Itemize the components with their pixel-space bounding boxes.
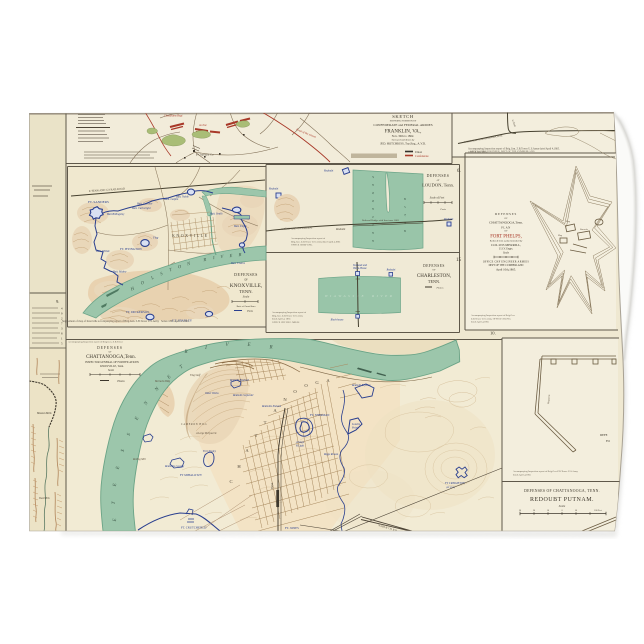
svg-text:Shal.Mills: Shal.Mills bbox=[39, 497, 50, 500]
svg-text:Redoubt: Redoubt bbox=[268, 188, 279, 191]
svg-text:FT. DICKERSON: FT. DICKERSON bbox=[126, 310, 150, 314]
svg-text:Redoubt: Redoubt bbox=[443, 218, 454, 221]
svg-text:S: S bbox=[371, 216, 375, 218]
svg-text:Redoubts Putnam: Redoubts Putnam bbox=[261, 405, 281, 408]
svg-text:DEFENSES: DEFENSES bbox=[495, 212, 517, 216]
svg-text:C: C bbox=[229, 479, 232, 484]
svg-text:RIVER: RIVER bbox=[371, 294, 394, 298]
svg-text:§ Chatham Co: § Chatham Co bbox=[196, 153, 214, 157]
svg-text:Batt. Fearns: Batt. Fearns bbox=[231, 262, 245, 265]
svg-text:Redoubt Carpenter: Redoubt Carpenter bbox=[232, 394, 255, 397]
svg-text:FT. BYINGTON: FT. BYINGTON bbox=[120, 247, 142, 251]
svg-text:DEFENSES: DEFENSES bbox=[97, 346, 123, 350]
svg-text:Accompanying Inspection report: Accompanying Inspection report of Brig.G… bbox=[68, 341, 123, 344]
svg-text:Nov. 30th to 1862.: Nov. 30th to 1862. bbox=[392, 134, 415, 138]
svg-text:Mission Mills: Mission Mills bbox=[37, 412, 52, 415]
svg-text:DEFENSES: DEFENSES bbox=[427, 174, 450, 178]
svg-text:Water Works: Water Works bbox=[205, 392, 219, 395]
svg-text:INSPECTOR GENERAL OF FORTIFICA: INSPECTOR GENERAL OF FORTIFICATIONS bbox=[85, 361, 139, 364]
svg-text:Croix: Croix bbox=[440, 208, 446, 211]
svg-text:15: 15 bbox=[456, 258, 462, 263]
svg-text:Redoubt Bushnell: Redoubt Bushnell bbox=[229, 379, 249, 382]
svg-text:SKETCH: SKETCH bbox=[392, 114, 414, 119]
svg-text:Redoubts Cassidy: Redoubts Cassidy bbox=[164, 465, 185, 468]
svg-text:Redoubt: Redoubt bbox=[335, 228, 346, 231]
svg-text:Batt. Smith: Batt. Smith bbox=[210, 213, 223, 216]
svg-text:Block-House: Block-House bbox=[353, 267, 367, 270]
svg-text:OF: OF bbox=[244, 279, 248, 282]
svg-text:R: R bbox=[183, 350, 187, 355]
svg-text:A Siege: A Siege bbox=[295, 441, 305, 444]
svg-text:Redoubt Boynton: Redoubt Boynton bbox=[351, 384, 371, 387]
svg-text:Batt. Engle: Batt. Engle bbox=[234, 225, 247, 228]
svg-text:Scale of Feet: Scale of Feet bbox=[430, 197, 445, 200]
svg-text:Barracks Bldg: Barracks Bldg bbox=[155, 380, 171, 383]
svg-text:OFFICE CHF ENG. MILES: OFFICE CHF ENG. MILES bbox=[272, 321, 300, 324]
svg-text:Scale: Scale bbox=[559, 504, 566, 508]
svg-text:Supplement of map of Knoxville: Supplement of map of Knoxville accompany… bbox=[62, 320, 189, 323]
svg-text:Confederate: Confederate bbox=[415, 155, 429, 158]
svg-text:OFFICE CHIEF ENGINEER, DEPT OF: OFFICE CHIEF ENGINEER, DEPT OF THE CUMBE… bbox=[470, 150, 535, 153]
svg-text:DEFE: DEFE bbox=[600, 433, 608, 437]
svg-text:Batt. Mabry: Batt. Mabry bbox=[113, 271, 127, 274]
svg-text:KNOXVILLE, Tenn.: KNOXVILLE, Tenn. bbox=[100, 365, 124, 368]
svg-text:Batt. of Guard lines: Batt. of Guard lines bbox=[237, 305, 256, 308]
svg-text:HIAWASSEE: HIAWASSEE bbox=[324, 294, 366, 298]
svg-text:Redoubt: Redoubt bbox=[386, 269, 396, 272]
svg-text:I: I bbox=[204, 346, 207, 351]
svg-text:FT MIHALOTZY: FT MIHALOTZY bbox=[180, 473, 203, 477]
svg-text:Scale: Scale bbox=[503, 252, 510, 255]
svg-text:Batt. Zoellner: Batt. Zoellner bbox=[137, 203, 153, 206]
svg-text:E: E bbox=[113, 483, 118, 488]
svg-text:E: E bbox=[246, 343, 250, 348]
svg-text:Depot: Depot bbox=[271, 482, 274, 489]
svg-text:Forts: Forts bbox=[246, 310, 253, 313]
svg-text:E: E bbox=[228, 253, 232, 258]
svg-text:Block-house: Block-house bbox=[331, 319, 345, 322]
svg-text:Batt. Wiltsie: Batt. Wiltsie bbox=[96, 250, 110, 253]
svg-text:9.: 9. bbox=[56, 299, 59, 304]
svg-text:Scale: Scale bbox=[243, 295, 250, 299]
svg-text:REDOUBT PUTNAM.: REDOUBT PUTNAM. bbox=[530, 497, 594, 503]
svg-text:CONFEDERATE and FEDERAL ARMIES: CONFEDERATE and FEDERAL ARMIES bbox=[373, 123, 432, 127]
svg-text:T: T bbox=[264, 420, 267, 425]
svg-text:KNOXVILLE: KNOXVILLE bbox=[172, 233, 209, 238]
svg-text:DEFENSES: DEFENSES bbox=[234, 272, 258, 277]
svg-text:dated April 4,1865: dated April 4,1865 bbox=[513, 473, 532, 476]
svg-text:FT. SANDERS: FT. SANDERS bbox=[88, 200, 109, 204]
svg-text:R: R bbox=[268, 346, 272, 351]
svg-text:FT. JONES: FT. JONES bbox=[285, 526, 299, 530]
svg-text:PLAN: PLAN bbox=[501, 225, 511, 229]
svg-text:R Light: R Light bbox=[295, 445, 304, 448]
svg-text:Fort Negley: Fort Negley bbox=[202, 450, 217, 453]
svg-text:Riggs Rowan: Riggs Rowan bbox=[323, 453, 339, 456]
svg-text:R: R bbox=[237, 252, 241, 257]
svg-text:10.: 10. bbox=[490, 331, 496, 336]
svg-text:FT. SHERMAN: FT. SHERMAN bbox=[310, 413, 330, 417]
svg-text:Photos: Photos bbox=[436, 287, 444, 290]
svg-text:CAMERON HILL: CAMERON HILL bbox=[181, 423, 208, 426]
svg-text:Batt Billingsley: Batt Billingsley bbox=[107, 213, 125, 216]
svg-text:Photos: Photos bbox=[116, 380, 124, 383]
svg-text:Rolling Mill: Rolling Mill bbox=[132, 458, 146, 461]
svg-text:dated April 4,1865: dated April 4,1865 bbox=[471, 321, 490, 324]
svg-text:TENN.: TENN. bbox=[239, 289, 252, 294]
svg-text:E: E bbox=[113, 518, 118, 522]
svg-text:U.S.V. Engrs.: U.S.V. Engrs. bbox=[499, 248, 513, 251]
svg-text:Batt. Cartwright: Batt. Cartwright bbox=[132, 207, 151, 210]
svg-text:Flag: Flag bbox=[152, 237, 159, 240]
svg-text:DEFENSES: DEFENSES bbox=[423, 264, 445, 268]
svg-text:T: T bbox=[255, 433, 258, 438]
svg-text:Barracks: Barracks bbox=[580, 229, 588, 231]
svg-text:TENN.: TENN. bbox=[428, 279, 440, 284]
svg-text:6.: 6. bbox=[457, 169, 461, 174]
svg-text:Union: Union bbox=[415, 151, 423, 154]
svg-text:Flag Staff: Flag Staff bbox=[189, 374, 202, 377]
svg-text:OFFICE CHF ENGINEER ARMIES: OFFICE CHF ENGINEER ARMIES bbox=[483, 260, 530, 263]
svg-text:FT. CRUTCHFIELD: FT. CRUTCHFIELD bbox=[181, 526, 207, 530]
svg-text:Redoubt: Redoubt bbox=[323, 170, 334, 173]
svg-text:Pointe: Pointe bbox=[351, 426, 360, 429]
svg-text:A Large McQuarrie: A Large McQuarrie bbox=[195, 432, 217, 435]
svg-text:Cheathams Regt: Cheathams Regt bbox=[164, 115, 183, 118]
svg-text:Batt. Noble: Batt. Noble bbox=[176, 196, 189, 199]
svg-text:FT CREIGHTON: FT CREIGHTON bbox=[445, 482, 465, 485]
svg-text:Scale: Scale bbox=[108, 369, 115, 372]
svg-text:Railroad Bridge with Iron trus: Railroad Bridge with Iron truss 1863 bbox=[362, 219, 400, 222]
svg-text:100 Feet: 100 Feet bbox=[594, 510, 602, 512]
svg-text:on line: on line bbox=[199, 124, 207, 127]
svg-text:CHATTANOOGA,Tenn.: CHATTANOOGA,Tenn. bbox=[86, 355, 136, 360]
svg-text:OFFICE CHIEF ENG.: OFFICE CHIEF ENG. bbox=[291, 244, 313, 247]
